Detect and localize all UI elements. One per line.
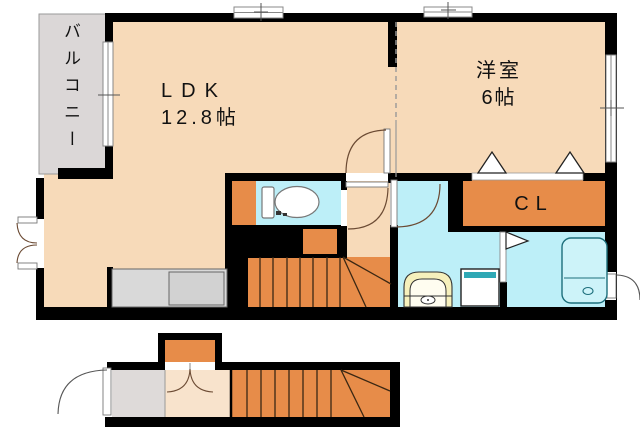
western-room-label: 洋室 6帖 — [446, 58, 552, 112]
floorplan: バルコニー LDK 12.8帖 洋室 6帖 CL — [0, 0, 640, 434]
hall-door-opening — [346, 173, 388, 181]
door-panel — [18, 217, 37, 223]
wall-segment — [583, 173, 617, 181]
wall-segment — [105, 13, 617, 22]
hall-floor — [343, 178, 390, 258]
ldk-size: 12.8帖 — [161, 105, 240, 132]
exterior-door-panel — [607, 274, 616, 298]
bathtub — [562, 238, 607, 303]
ldk-label: LDK 12.8帖 — [161, 78, 240, 132]
entrance-door-panel — [103, 368, 111, 415]
ldk-floor — [113, 20, 397, 178]
lower-plan — [58, 333, 400, 427]
ldk-door-panel — [384, 129, 390, 173]
door-swing-arc — [617, 275, 640, 300]
wall-segment — [225, 173, 346, 181]
wall-segment — [36, 178, 44, 219]
sink-unit — [169, 272, 224, 305]
balcony-label: バルコニー — [58, 22, 81, 174]
vanity-sink — [404, 272, 452, 307]
toilet-control — [283, 213, 287, 216]
toilet-door-opening — [341, 190, 347, 226]
lower-closet — [165, 340, 215, 362]
door-panel — [18, 263, 37, 269]
hall-door-panel — [346, 182, 388, 187]
opening — [36, 219, 44, 268]
ldk-name: LDK — [161, 78, 240, 105]
toilet-tank — [262, 187, 274, 218]
wall-segment — [36, 268, 44, 307]
toilet-bowl — [275, 187, 319, 218]
door-swing-arc — [58, 370, 107, 414]
wall-segment — [500, 282, 507, 308]
washer-panel — [464, 272, 496, 278]
washroom-door-panel — [391, 180, 397, 227]
bath-door-strip — [500, 232, 506, 282]
closet-sliding-door — [472, 173, 583, 180]
western-room-size: 6帖 — [446, 85, 552, 112]
wall-segment — [222, 362, 400, 370]
wall-segment — [448, 226, 608, 232]
wall-segment — [107, 362, 158, 370]
wall-segment — [36, 307, 617, 320]
toilet-control — [276, 211, 281, 215]
closet-label: CL — [463, 191, 605, 218]
kitchen-counter — [112, 269, 227, 307]
vanity-dot — [427, 299, 429, 301]
toilet — [262, 187, 319, 219]
wall-segment — [390, 362, 400, 427]
entrance-floor — [112, 370, 165, 417]
door-swing-arc — [17, 223, 37, 243]
wall-segment — [105, 417, 400, 427]
staircase-lower — [232, 370, 390, 417]
washing-machine — [461, 269, 499, 306]
toilet-cabinet — [232, 179, 256, 227]
wall-segment — [448, 178, 463, 227]
western-room-name: 洋室 — [446, 58, 552, 85]
stair-landing — [303, 229, 337, 254]
staircase-upper — [247, 257, 390, 308]
wall-segment — [390, 225, 398, 308]
lower-hall-floor — [165, 370, 232, 417]
wall-segment — [225, 257, 248, 308]
door-swing-arc — [17, 245, 37, 263]
